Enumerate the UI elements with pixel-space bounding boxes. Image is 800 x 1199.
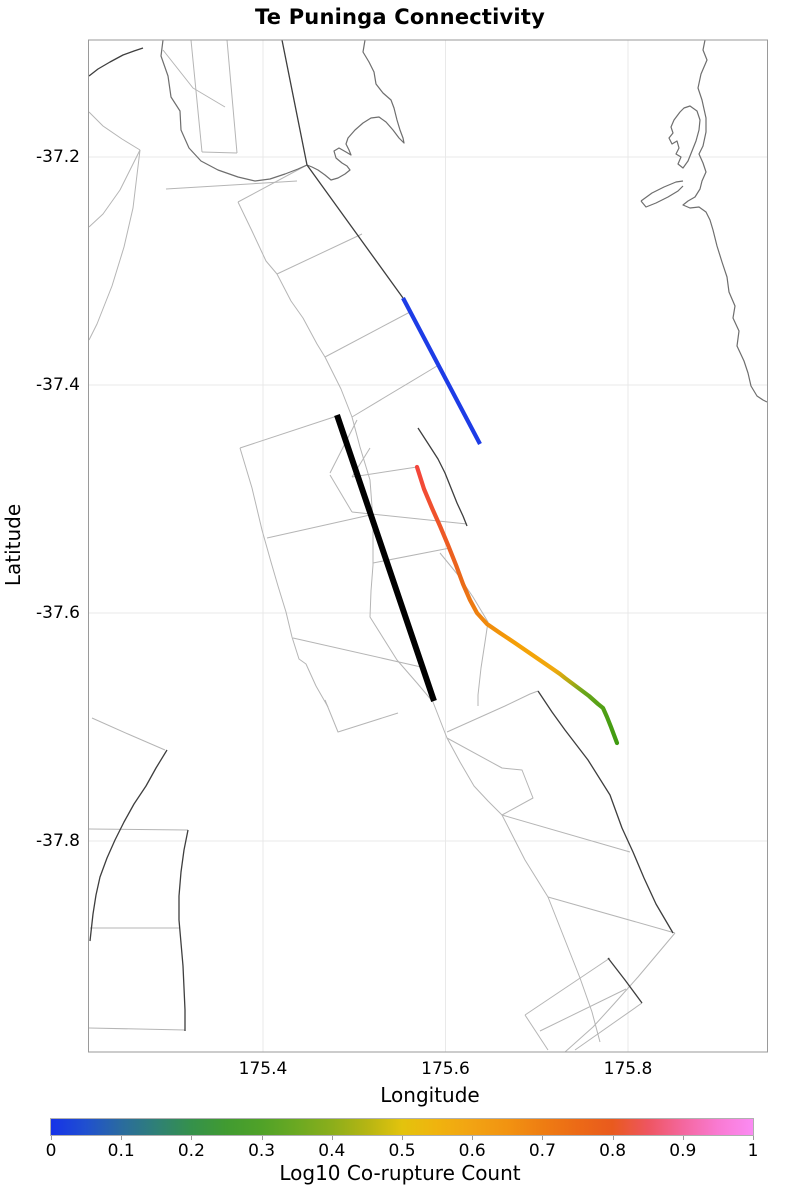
- te-puninga-fault-highlight: [337, 415, 434, 701]
- fault-trace-dark: [179, 830, 188, 1031]
- colorbar-tick-mark: [613, 1136, 614, 1140]
- fault-trace-light: [352, 467, 417, 477]
- map-plot: [0, 0, 800, 1199]
- fault-trace-light: [525, 1015, 548, 1050]
- x-tick-label: 175.4: [218, 1059, 308, 1079]
- fault-trace-light: [89, 150, 140, 227]
- colorbar-tick-label: 0: [21, 1141, 81, 1161]
- y-tick-label: -37.6: [10, 603, 80, 623]
- fault-trace-light: [89, 150, 140, 340]
- colorbar-tick-mark: [402, 1136, 403, 1140]
- fault-trace-light: [325, 700, 398, 732]
- y-tick-label: -37.2: [10, 147, 80, 167]
- fault-trace-dark: [282, 40, 307, 165]
- fault-trace-light: [89, 1028, 185, 1030]
- fault-trace-light: [447, 691, 538, 732]
- colorbar-tick-label: 0.6: [442, 1141, 502, 1161]
- fault-trace-light: [240, 416, 337, 448]
- x-tick-label: 175.8: [583, 1059, 673, 1079]
- y-tick-label: -37.4: [10, 375, 80, 395]
- corupture-segment-blue: [403, 298, 480, 444]
- fault-trace-dark: [89, 48, 143, 76]
- fault-trace-light: [267, 515, 370, 538]
- coastline: [307, 40, 404, 180]
- fault-trace-light: [525, 958, 610, 1015]
- coastline: [161, 40, 307, 181]
- fault-trace-light: [166, 181, 297, 189]
- colorbar-tick-label: 0.4: [302, 1141, 362, 1161]
- fault-trace-light: [330, 475, 352, 512]
- coastline: [683, 40, 767, 402]
- fault-trace-light: [191, 40, 202, 152]
- colorbar-gradient: [50, 1118, 754, 1136]
- fault-trace-light: [293, 638, 421, 667]
- fault-trace-light: [540, 989, 626, 1031]
- plot-frame: [89, 40, 768, 1052]
- colorbar-tick-mark: [121, 1136, 122, 1140]
- colorbar-tick-label: 0.7: [512, 1141, 572, 1161]
- fault-trace-light: [352, 366, 437, 417]
- coastline: [641, 181, 683, 201]
- fault-trace-light: [227, 40, 237, 153]
- fault-trace-light: [89, 112, 140, 150]
- fault-trace-light: [502, 815, 630, 852]
- fault-trace-light: [440, 553, 488, 706]
- fault-trace-light: [240, 448, 328, 707]
- fault-trace-dark: [538, 691, 673, 933]
- colorbar-tick-mark: [472, 1136, 473, 1140]
- colorbar-tick-label: 0.2: [161, 1141, 221, 1161]
- y-axis-label: Latitude: [1, 495, 25, 595]
- corupture-segment-gradient: [417, 467, 617, 743]
- colorbar-tick-mark: [683, 1136, 684, 1140]
- y-tick-label: -37.8: [10, 831, 80, 851]
- coastline: [669, 106, 700, 168]
- colorbar-tick-label: 0.3: [232, 1141, 292, 1161]
- fault-trace-light: [89, 829, 188, 830]
- colorbar-tick-label: 0.8: [583, 1141, 643, 1161]
- fault-trace-dark: [418, 428, 467, 526]
- x-axis-label: Longitude: [0, 1083, 800, 1107]
- colorbar-label: Log10 Co-rupture Count: [0, 1161, 800, 1185]
- colorbar-tick-mark: [753, 1136, 754, 1140]
- colorbar-tick-label: 0.1: [91, 1141, 151, 1161]
- colorbar-tick-label: 0.9: [653, 1141, 713, 1161]
- fault-trace-dark: [307, 165, 403, 298]
- fault-trace-light: [325, 312, 410, 357]
- fault-trace-dark: [90, 750, 167, 941]
- figure-root: Te Puninga Connectivity 175.4175.6175.8 …: [0, 0, 800, 1199]
- x-tick-label: 175.6: [401, 1059, 491, 1079]
- fault-trace-light: [202, 152, 237, 153]
- colorbar-tick-mark: [542, 1136, 543, 1140]
- colorbar-tick-label: 1: [723, 1141, 783, 1161]
- fault-trace-dark: [608, 958, 642, 1003]
- colorbar-tick-mark: [332, 1136, 333, 1140]
- fault-trace-light: [277, 234, 362, 274]
- colorbar-tick-mark: [191, 1136, 192, 1140]
- fault-trace-light: [92, 718, 165, 750]
- colorbar-tick-mark: [51, 1136, 52, 1140]
- colorbar-tick-label: 0.5: [372, 1141, 432, 1161]
- colorbar-tick-mark: [262, 1136, 263, 1140]
- fault-trace-light: [565, 933, 675, 1052]
